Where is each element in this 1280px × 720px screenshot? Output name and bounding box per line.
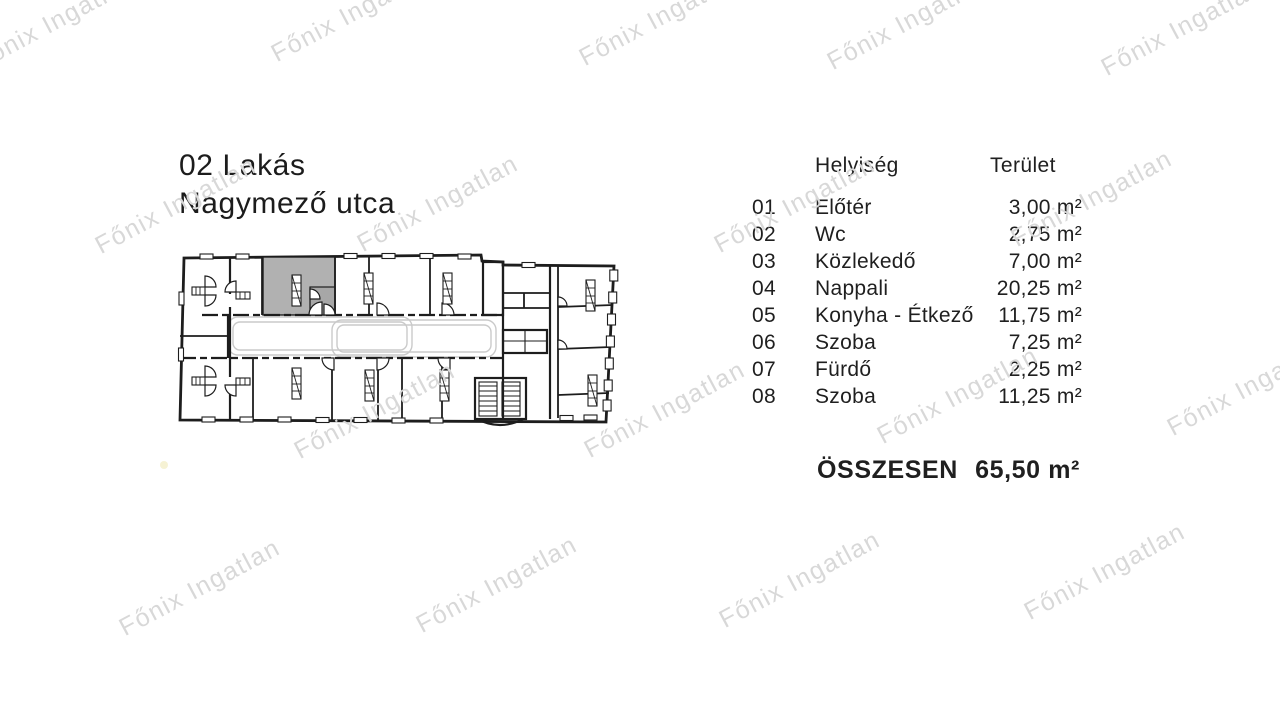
watermark-text: Főnix Ingatlan bbox=[412, 530, 583, 639]
room-number: 08 bbox=[752, 385, 815, 412]
table-row: 02Wc2,75 m² bbox=[752, 223, 1082, 250]
room-number: 04 bbox=[752, 277, 815, 304]
room-number: 02 bbox=[752, 223, 815, 250]
room-name: Szoba bbox=[815, 385, 975, 412]
room-area: 11,75 m² bbox=[975, 304, 1082, 331]
room-number: 06 bbox=[752, 331, 815, 358]
total-value: 65,50 m² bbox=[970, 456, 1080, 485]
watermark-text: Főnix Ingatlan bbox=[1097, 0, 1268, 83]
table-row: 01Előtér3,00 m² bbox=[752, 196, 1082, 223]
table-header-room: Helyiség bbox=[815, 154, 899, 178]
watermark-text: Főnix Ingatlan bbox=[115, 533, 286, 642]
table-row: 03Közlekedő7,00 m² bbox=[752, 250, 1082, 277]
title-apartment: 02 Lakás bbox=[179, 147, 395, 185]
table-row: 07Fürdő2,25 m² bbox=[752, 358, 1082, 385]
room-number: 03 bbox=[752, 250, 815, 277]
watermark-text: Főnix Ingatlan bbox=[715, 525, 886, 634]
page: Főnix IngatlanFőnix IngatlanFőnix Ingatl… bbox=[0, 0, 1280, 720]
room-name: Közlekedő bbox=[815, 250, 975, 277]
total-label: ÖSSZESEN bbox=[817, 456, 958, 485]
room-name: Fürdő bbox=[815, 358, 975, 385]
room-area: 11,25 m² bbox=[975, 385, 1082, 412]
room-number: 07 bbox=[752, 358, 815, 385]
room-name: Szoba bbox=[815, 331, 975, 358]
watermark-text: Főnix Ingatlan bbox=[823, 0, 994, 77]
room-table: 01Előtér3,00 m²02Wc2,75 m²03Közlekedő7,0… bbox=[752, 196, 1082, 412]
table-row: 06Szoba7,25 m² bbox=[752, 331, 1082, 358]
table-row: 04Nappali20,25 m² bbox=[752, 277, 1082, 304]
artifact-dot bbox=[160, 461, 168, 469]
page-title: 02 Lakás Nagymező utca bbox=[179, 147, 395, 223]
room-name: Előtér bbox=[815, 196, 975, 223]
room-area: 7,00 m² bbox=[975, 250, 1082, 277]
room-area: 7,25 m² bbox=[975, 331, 1082, 358]
watermark-text: Főnix Ingatlan bbox=[0, 0, 140, 77]
room-area: 3,00 m² bbox=[975, 196, 1082, 223]
room-name: Wc bbox=[815, 223, 975, 250]
room-area: 2,25 m² bbox=[975, 358, 1082, 385]
room-name: Konyha - Étkező bbox=[815, 304, 975, 331]
watermark-text: Főnix Ingatlan bbox=[1020, 517, 1191, 626]
watermark-text: Főnix Ingatlan bbox=[267, 0, 438, 69]
watermark-text: Főnix Ingatlan bbox=[1163, 333, 1280, 442]
title-street: Nagymező utca bbox=[179, 185, 395, 223]
table-row: 05Konyha - Étkező11,75 m² bbox=[752, 304, 1082, 331]
room-number: 01 bbox=[752, 196, 815, 223]
table-row: 08Szoba11,25 m² bbox=[752, 385, 1082, 412]
watermark-text: Főnix Ingatlan bbox=[575, 0, 746, 73]
table-header-area: Terület bbox=[990, 154, 1056, 178]
room-area: 2,75 m² bbox=[975, 223, 1082, 250]
room-name: Nappali bbox=[815, 277, 975, 304]
floor-plan bbox=[172, 250, 634, 430]
room-number: 05 bbox=[752, 304, 815, 331]
room-area: 20,25 m² bbox=[975, 277, 1082, 304]
